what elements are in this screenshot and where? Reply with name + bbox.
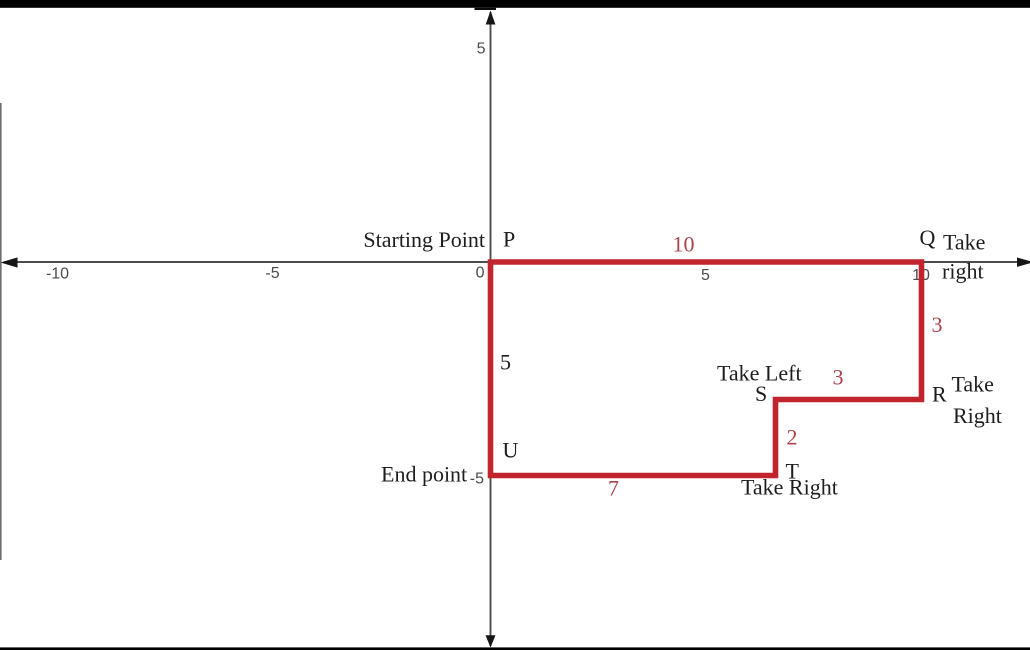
svg-text:Right: Right [953,403,1002,428]
svg-text:0: 0 [476,265,485,282]
svg-text:5: 5 [701,267,710,284]
svg-text:right: right [942,259,984,284]
svg-text:7: 7 [608,476,619,501]
svg-text:2: 2 [787,425,798,450]
svg-text:Take: Take [943,230,985,255]
svg-text:Starting Point: Starting Point [363,227,485,252]
svg-text:U: U [503,438,519,463]
svg-text:3: 3 [833,365,844,390]
svg-text:10: 10 [673,232,695,257]
svg-text:-10: -10 [46,266,69,283]
svg-text:End point: End point [381,462,467,487]
svg-text:Take Right: Take Right [741,475,838,500]
svg-text:-5: -5 [470,471,484,488]
svg-text:R: R [932,382,947,407]
svg-text:Take: Take [952,372,994,397]
svg-text:S: S [755,381,767,406]
svg-text:-5: -5 [265,265,279,282]
svg-text:5: 5 [477,41,486,58]
svg-text:5: 5 [500,350,511,375]
svg-text:3: 3 [932,312,943,337]
svg-text:P: P [503,227,515,252]
svg-text:Q: Q [920,225,936,250]
